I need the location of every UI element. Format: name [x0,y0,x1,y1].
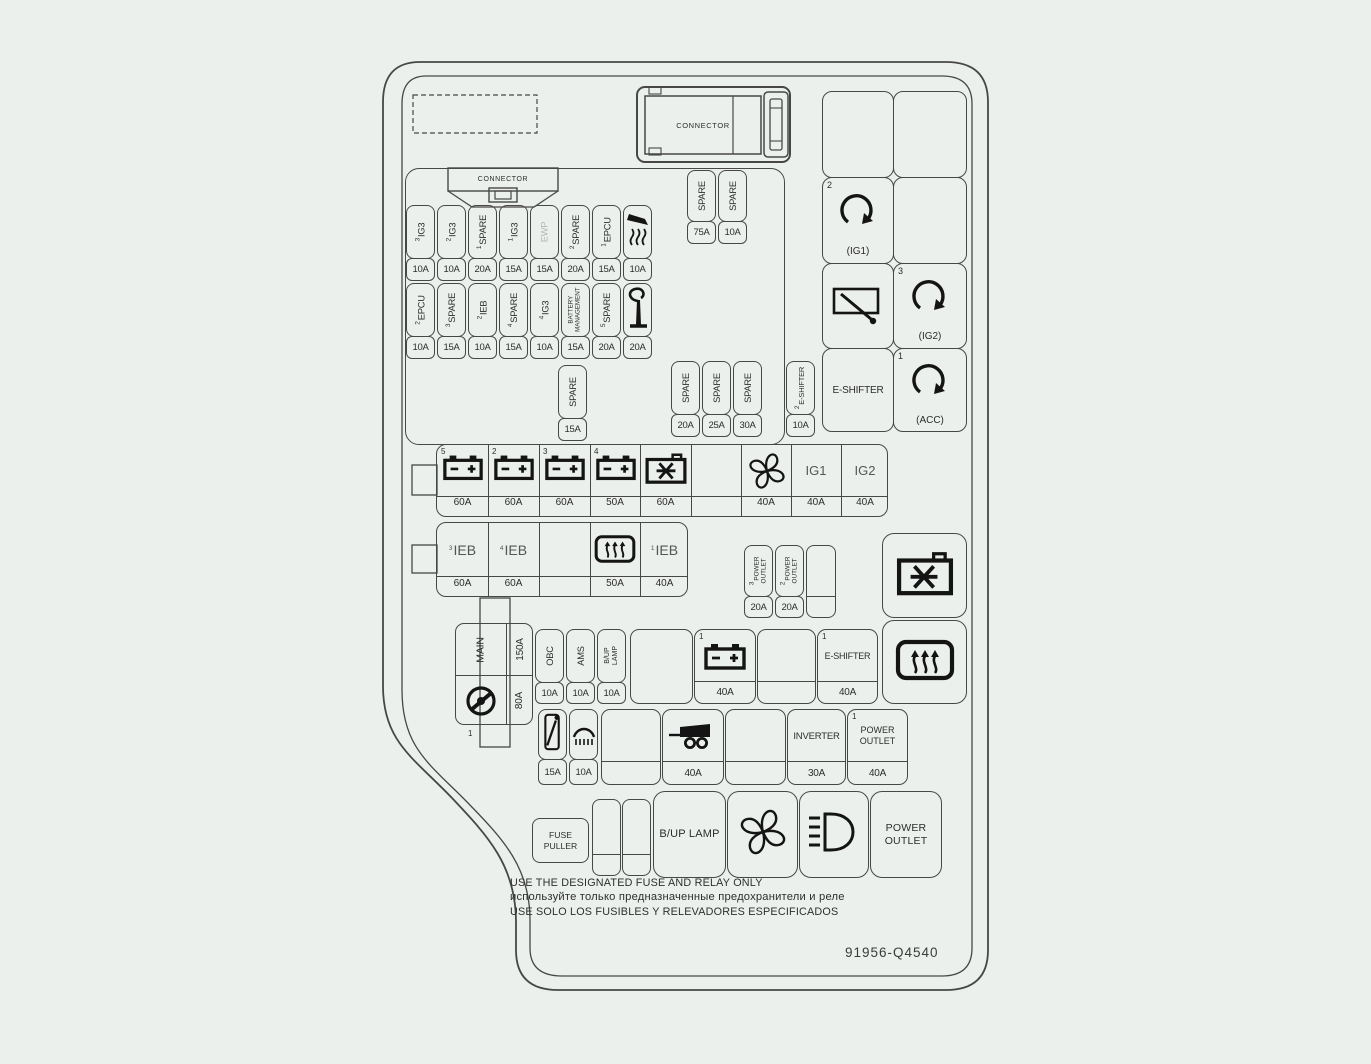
amp-rating: 30A [788,762,845,784]
amp-rating: 10A [597,682,626,704]
amp-rating: 20A [561,258,590,281]
relay-slot-empty-1 [822,91,894,178]
amp-rating: 10A [569,759,598,785]
amp-rating: 40A [848,762,907,784]
relay-wiper [822,263,894,349]
ac-compressor-icon [895,549,955,602]
lamp-icon [571,715,597,754]
headlight-box [799,791,869,878]
amp-rating: 15A [437,336,466,359]
relay-power-outlet-1: 1 POWER OUTLET 40A [847,709,908,785]
relay-battery-1: 1 40A [694,629,756,704]
footer-note-es: USE SOLO LOS FUSIBLES Y RELEVADORES ESPE… [510,906,838,918]
fuse-slot-empty-b [622,799,651,876]
amp-rating: 15A [561,336,590,359]
main-fuse-block: MAIN 150A 1 80A [455,623,533,725]
amp-rating: 25A [702,414,731,437]
amp-rating: 15A [592,258,621,281]
relay-slot-empty-5 [757,629,816,704]
bup-lamp-box: B/UP LAMP [653,791,726,878]
headlight-icon [807,809,861,860]
relay-row-a: 5 2 3 4 IG1 IG2 60A 60A 60A 50A 60A 40A … [436,444,888,517]
relay-ig2: 3 (IG2) [893,263,967,349]
fuse-box-diagram: CONNECTOR CONNECTOR 3IG3 10A 2IG3 10A 1S… [0,0,1371,1064]
amp-rating: 20A [468,258,497,281]
amp-rating: 10A [718,221,747,244]
amp-rating: 10A [786,414,815,437]
relay-row-b: 3IEB 4IEB 1IEB 60A 60A 50A 40A [436,522,688,597]
amp-rating: 10A [623,258,652,281]
battery-icon [542,452,587,482]
fan-icon [735,804,791,865]
part-number: 91956-Q4540 [845,945,939,960]
amp-rating: 15A [530,258,559,281]
relay-slot-empty-6 [601,709,661,785]
amp-rating: 30A [733,414,762,437]
power-outlet-box: POWER OUTLET [870,791,942,878]
rear-wiper-icon [542,711,564,758]
amp-rating: 10A [566,682,595,704]
fan-icon [743,449,790,493]
amp-rating: 10A [406,336,435,359]
amp-rating: 20A [623,336,652,359]
defroster-icon [590,533,640,565]
amp-rating: 10A [468,336,497,359]
relay-trailer: 40A [662,709,724,785]
ignition-rotate-icon [894,274,966,316]
wiper-icon [823,264,893,348]
relay-ig1: 2 (IG1) [822,177,894,264]
amp-rating: 15A [538,759,567,785]
amp-rating: 20A [671,414,700,437]
fuse-slot-empty [806,545,836,618]
top-connector-label: CONNECTOR [645,96,761,154]
fuse-puller-box: FUSE PULLER [532,818,589,863]
battery-icon [593,452,638,482]
footer-note-en: USE THE DESIGNATED FUSE AND RELAY ONLY [510,877,763,889]
relay-e-shifter: E-SHIFTER [822,348,894,432]
ignition-rotate-icon [823,188,893,230]
battery-icon [695,630,755,682]
fuse-slot-empty-a [592,799,621,876]
ignition-rotate-icon [894,358,966,400]
footer-note-ru: используйте только предназначенные предо… [510,891,845,903]
ac-compressor-icon [644,451,688,485]
amp-rating: 20A [592,336,621,359]
relay-e-shifter-fuse: 1 E-SHIFTER 40A [817,629,878,704]
amp-rating: 40A [663,762,723,784]
defroster-icon [894,637,956,688]
trailer-icon [663,710,723,762]
battery-icon [491,452,536,482]
amp-rating: 20A [775,596,804,618]
amp-rating: 10A [406,258,435,281]
relay-slot-empty-3 [893,177,967,264]
relay-slot-empty-2 [893,91,967,178]
amp-rating: 10A [437,258,466,281]
heater-icon [626,210,650,255]
steering-wheel-icon: 1 [456,675,506,726]
horn-icon [625,286,651,335]
amp-rating: 10A [530,336,559,359]
amp-rating: 20A [744,596,773,618]
defroster-box [882,620,967,704]
relay-acc: 1 (ACC) [893,348,967,432]
amp-rating: 10A [535,682,564,704]
amp-rating: 15A [558,418,587,441]
amp-rating: 75A [687,221,716,244]
amp-rating: 40A [818,682,877,703]
fan-box [727,791,798,878]
amp-rating: 40A [695,682,755,703]
amp-rating: 15A [499,258,528,281]
battery-icon [440,452,485,482]
relay-slot-empty-7 [725,709,786,785]
ac-compressor-box [882,533,967,618]
relay-inverter: INVERTER 30A [787,709,846,785]
amp-rating: 15A [499,336,528,359]
inner-connector-label: CONNECTOR [448,168,558,191]
relay-slot-empty-4 [630,629,693,704]
